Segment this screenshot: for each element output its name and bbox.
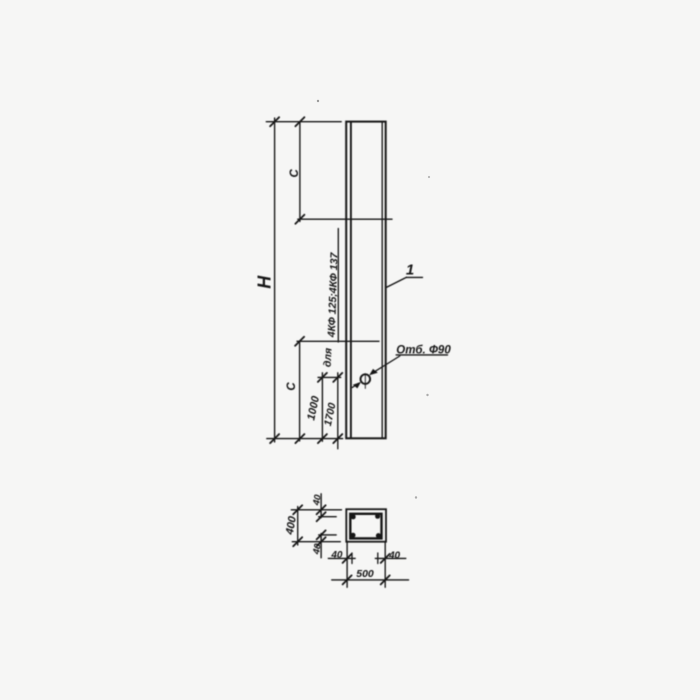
svg-text:C: C [286, 382, 298, 391]
svg-text:C: C [289, 168, 301, 177]
svg-text:Отб. Ф90: Отб. Ф90 [396, 344, 451, 356]
svg-text:H: H [255, 275, 275, 289]
svg-text:40: 40 [330, 550, 343, 561]
svg-text:для: для [322, 348, 335, 368]
svg-text:500: 500 [356, 568, 374, 580]
svg-text:1: 1 [406, 262, 414, 279]
svg-text:40: 40 [388, 550, 401, 561]
